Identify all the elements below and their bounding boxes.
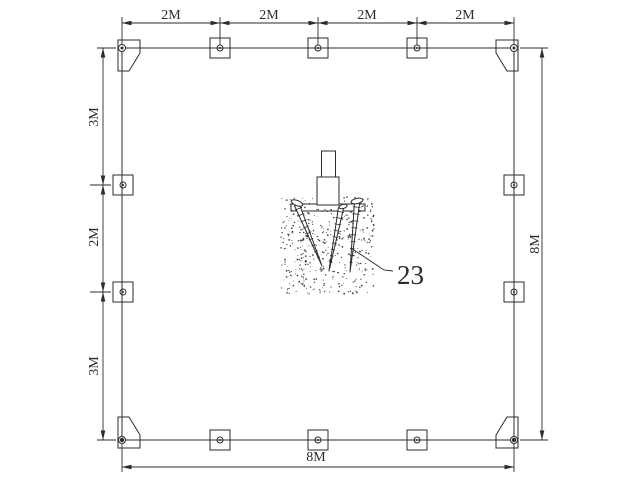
- extension-lines: [90, 17, 548, 472]
- dim-label-left-3: 3M: [87, 356, 102, 376]
- dimension-labels: 2M 2M 2M 2M 3M 2M 3M 8M 8M: [87, 8, 543, 465]
- anchor-post-lower: [317, 177, 339, 205]
- callout-leader-line: [351, 248, 393, 271]
- ground-anchor-detail: 23: [280, 151, 424, 295]
- perimeter-frame: [122, 48, 514, 440]
- dimension-lines: [103, 23, 542, 467]
- corner-gussets: [118, 40, 518, 448]
- dim-label-right: 8M: [528, 234, 543, 254]
- edge-anchor-plates: [113, 38, 524, 450]
- anchor-layout-technical-drawing: 2M 2M 2M 2M 3M 2M 3M 8M 8M: [0, 0, 640, 480]
- dim-label-top-3: 2M: [357, 8, 377, 23]
- dim-label-bottom: 8M: [306, 450, 326, 465]
- anchor-post-upper: [322, 151, 336, 177]
- dim-label-top-1: 2M: [161, 8, 181, 23]
- stake-head-left: [290, 198, 303, 207]
- anchor-plate: [113, 175, 133, 195]
- dim-label-left-1: 3M: [87, 107, 102, 127]
- dim-label-left-2: 2M: [87, 227, 102, 247]
- anchor-plate: [113, 282, 133, 302]
- callout-label: 23: [397, 260, 424, 290]
- dim-label-top-2: 2M: [259, 8, 279, 23]
- dim-label-top-4: 2M: [455, 8, 475, 23]
